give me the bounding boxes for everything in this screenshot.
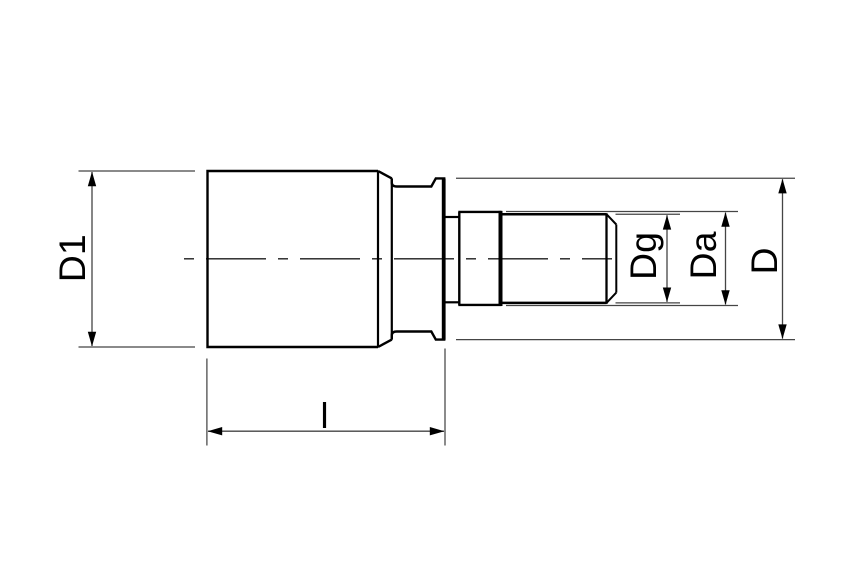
svg-text:D: D: [743, 247, 785, 274]
svg-text:Dg: Dg: [622, 232, 664, 280]
svg-text:l: l: [321, 395, 329, 436]
svg-text:Da: Da: [682, 231, 724, 279]
svg-text:D1: D1: [51, 234, 93, 282]
